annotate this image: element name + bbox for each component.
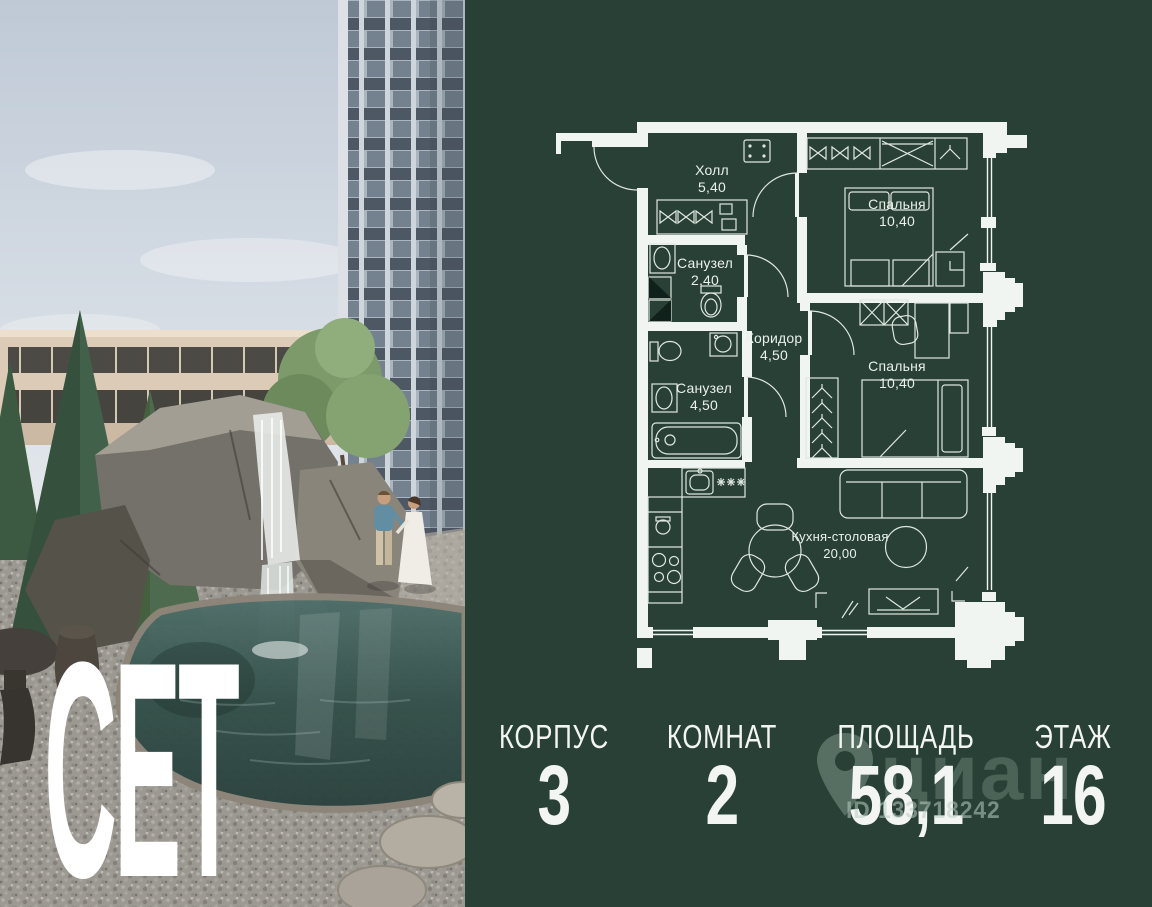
room-area: 10,40	[845, 375, 949, 392]
room-label-bedroom1: Спальня 10,40	[845, 196, 949, 230]
room-label-hall: Холл 5,40	[662, 162, 762, 196]
tv-stand-icon	[869, 589, 938, 614]
room-area: 4,50	[654, 397, 754, 414]
room-area: 4,50	[724, 347, 824, 364]
room-area: 10,40	[845, 213, 949, 230]
room-name: Холл	[662, 162, 762, 179]
apartment-walls	[556, 122, 1027, 668]
bedroom2-window-marks	[952, 567, 968, 601]
room-name: Санузел	[654, 380, 754, 397]
hall-table-icon	[744, 140, 770, 162]
room-name: Спальня	[845, 358, 949, 375]
room-name: Спальня	[845, 196, 949, 213]
room-name: Коридор	[724, 330, 824, 347]
room-label-bathroom1: Санузел 2,40	[655, 255, 755, 289]
listing-card: СЕТ циан	[0, 0, 1152, 907]
bay-window-top	[983, 272, 1023, 320]
watermark-id: ID 133718242	[846, 797, 1093, 825]
room-label-kitchen: Кухня-столовая 20,00	[760, 528, 920, 562]
bedroom1-wardrobe-icon	[807, 138, 967, 169]
floor-marks	[816, 593, 858, 618]
room-area: 2,40	[655, 272, 755, 289]
room-name: Санузел	[655, 255, 755, 272]
room-label-corridor: Коридор 4,50	[724, 330, 824, 364]
room-name: Кухня-столовая	[760, 528, 920, 545]
room-label-bathroom2: Санузел 4,50	[654, 380, 754, 414]
room-label-bedroom2: Спальня 10,40	[845, 358, 949, 392]
floor-plan: циан	[0, 0, 1152, 907]
hall-wardrobe-icon	[657, 200, 747, 234]
bay-window-bottom-middle	[768, 620, 817, 660]
bedroom2-desk-chair-icon	[891, 303, 968, 358]
bedroom2-wardrobe-icon	[860, 300, 908, 325]
bedroom2-hanger-rack-icon	[806, 378, 838, 458]
bay-window-middle	[983, 437, 1023, 485]
kitchen-counter-icons	[648, 468, 745, 603]
room-area: 5,40	[662, 179, 762, 196]
room-area: 20,00	[760, 545, 920, 562]
entrance-door-arc	[594, 147, 637, 190]
sofa-icon	[840, 470, 967, 518]
bay-window-bottom-right	[955, 602, 1024, 668]
